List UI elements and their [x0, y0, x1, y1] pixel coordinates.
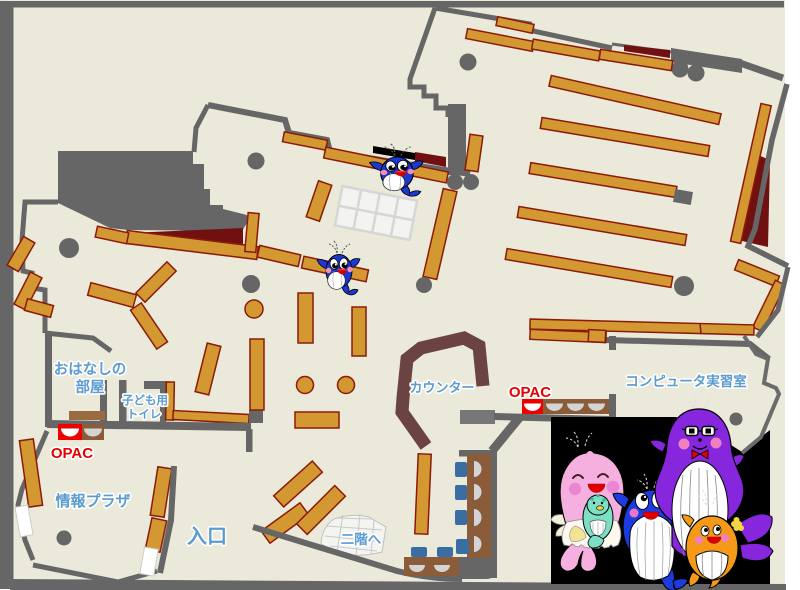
svg-text:情報プラザ: 情報プラザ — [55, 492, 130, 510]
svg-text:部屋: 部屋 — [76, 378, 105, 396]
svg-text:OPAC: OPAC — [51, 445, 93, 462]
svg-text:カウンター: カウンター — [409, 380, 474, 395]
svg-text:トイレ: トイレ — [127, 408, 162, 421]
svg-text:二階へ: 二階へ — [341, 531, 382, 547]
svg-text:入口: 入口 — [187, 525, 227, 548]
svg-text:おはなしの: おはなしの — [54, 361, 127, 378]
svg-text:コンピュータ実習室: コンピュータ実習室 — [625, 373, 747, 389]
svg-text:OPAC: OPAC — [509, 384, 551, 401]
svg-text:子ども用: 子ども用 — [122, 394, 168, 407]
